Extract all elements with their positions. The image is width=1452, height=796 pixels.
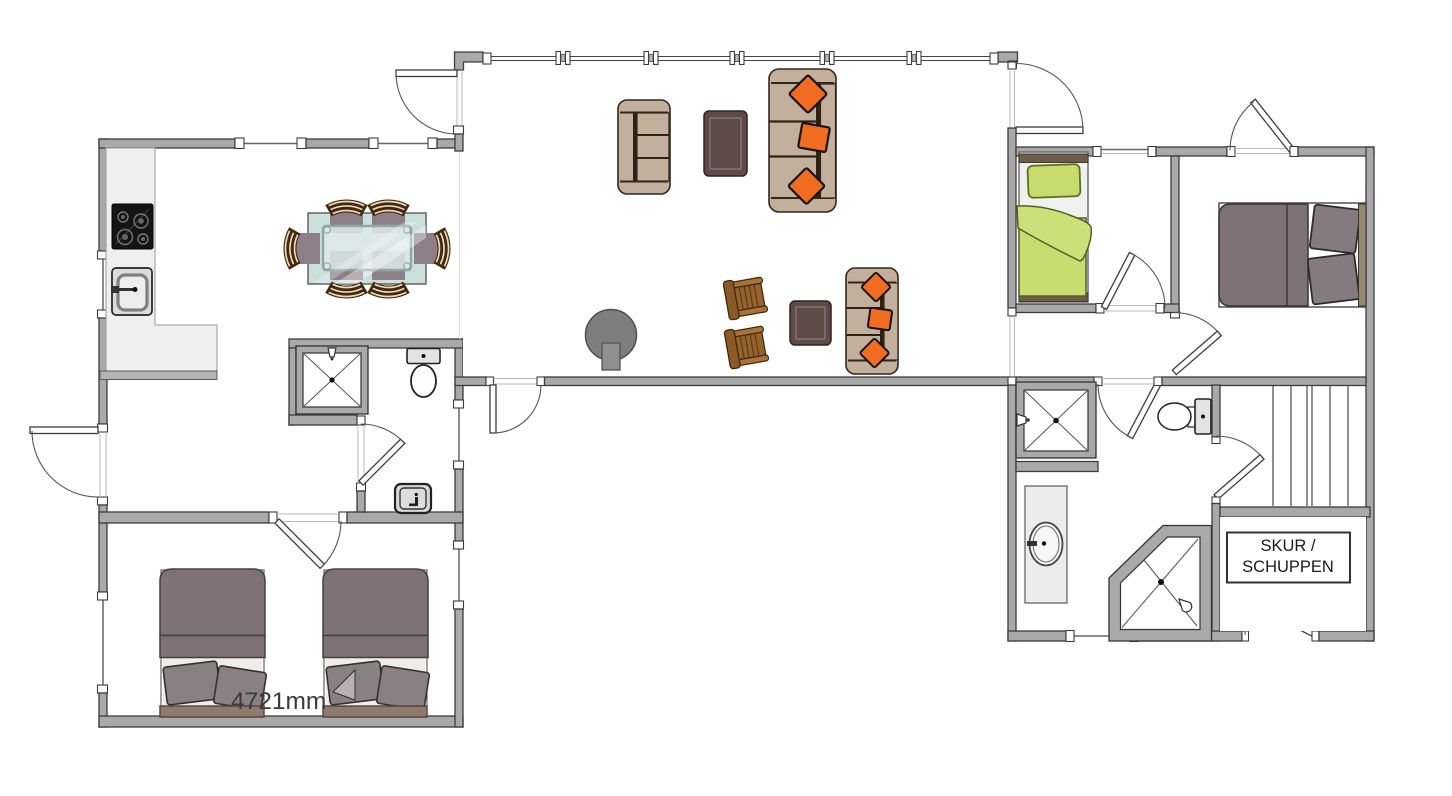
svg-text:SCHUPPEN: SCHUPPEN — [1242, 558, 1334, 576]
svg-text:SKUR /: SKUR / — [1260, 537, 1315, 555]
svg-text:4721mm: 4721mm — [231, 688, 326, 715]
